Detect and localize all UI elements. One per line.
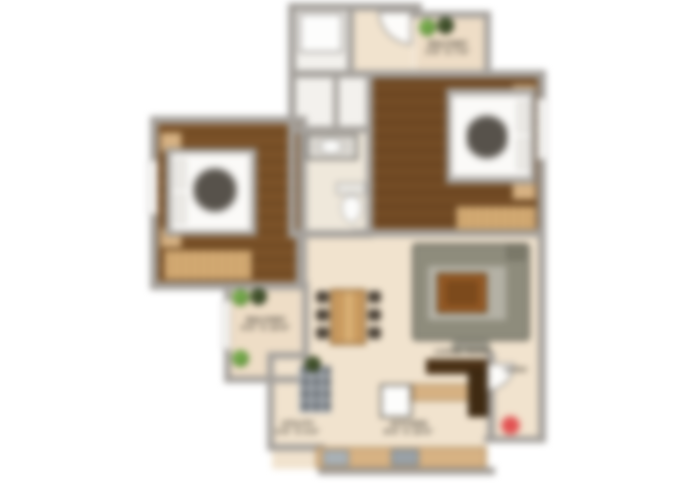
utility-dims: 3'0" X 4'0": [276, 428, 321, 436]
pillow: [517, 101, 528, 133]
wall-balcony-top: [411, 11, 491, 18]
dining-chair: [316, 327, 329, 339]
living-label: LIVING ROOM: [432, 348, 494, 356]
refrigerator: [468, 370, 488, 417]
wardrobe-left: [164, 250, 252, 280]
pillow: [517, 138, 528, 170]
pillow: [175, 194, 186, 224]
wc-right-floor: [337, 75, 368, 128]
floor-plan-image: BALCONY 3'6" X 7'0" BALCONY 4'0" X 10'0"…: [0, 0, 700, 488]
wall-toilet-room-left: [288, 128, 296, 238]
kitchen-island: [380, 384, 412, 418]
wall-entry-bottom: [484, 436, 546, 443]
kitchen-name: KITCHEN: [391, 420, 428, 428]
kitchen-sink: [323, 450, 349, 466]
kitchen-label: KITCHEN 8'0" X 10'0": [380, 420, 438, 436]
plant-icon: [419, 19, 436, 36]
window-bedroom-left: [148, 160, 158, 215]
wall-utility-left: [267, 352, 274, 451]
dining-chair: [316, 309, 329, 321]
stove: [391, 449, 419, 466]
wall-living-left: [296, 237, 303, 287]
dining-chair: [368, 309, 381, 321]
wall-wc-divider: [333, 74, 339, 130]
wall-kitchen-bottom: [318, 467, 495, 475]
dining-chair: [368, 291, 381, 303]
dining-table-runner: [345, 292, 353, 342]
balcony-left-name: BALCONY: [246, 316, 285, 324]
blurred-plan-wrapper: BALCONY 3'6" X 7'0" BALCONY 4'0" X 10'0"…: [0, 0, 700, 488]
wall-top-bath: [288, 3, 422, 11]
wall-bedrooms-top: [288, 70, 546, 78]
entry-label: ENTRY: [496, 368, 536, 375]
wardrobe-right: [456, 206, 536, 230]
utility-name: UTILITY: [282, 420, 314, 428]
coffee-table-top: [445, 280, 479, 306]
kitchen-dims: 8'0" X 10'0": [384, 428, 434, 436]
plant-icon: [232, 289, 249, 306]
side-table: [507, 244, 525, 260]
wall-balcony-right: [484, 11, 491, 78]
balcony-top-dims: 3'6" X 7'0": [426, 48, 471, 56]
kitchen-counter-top: [412, 384, 470, 401]
wall-bath-foyer-divider: [347, 3, 354, 74]
dining-chair: [368, 327, 381, 339]
washbasin: [320, 139, 342, 154]
balcony-left-label: BALCONY 4'0" X 10'0": [234, 316, 298, 332]
balcony-top-name: BALCONY: [428, 40, 467, 48]
balcony-left-dims: 4'0" X 10'0": [241, 324, 291, 332]
pillow: [175, 159, 186, 189]
wall-bath-left: [288, 3, 296, 132]
window-balcony-left: [222, 300, 231, 350]
window-bedroom-right: [537, 98, 547, 160]
dining-chair: [316, 291, 329, 303]
plant-icon: [250, 288, 267, 305]
balcony-top-label: BALCONY 3'6" X 7'0": [416, 40, 480, 56]
utility-label: UTILITY 3'0" X 4'0": [272, 420, 324, 436]
wall-bath-block-right: [366, 70, 373, 237]
wall-bedroom-left-top: [150, 116, 307, 124]
plant-icon: [305, 356, 321, 372]
bed-right-blanket: [466, 112, 508, 162]
utility-rack: [299, 366, 331, 413]
plant-icon: [232, 350, 249, 367]
entry-name: ENTRY: [504, 367, 527, 374]
toilet-tank: [336, 182, 366, 195]
bed-left-blanket: [192, 166, 238, 214]
living-name: LIVING ROOM: [435, 348, 492, 356]
plant-icon: [437, 17, 454, 34]
shower-tray: [299, 13, 343, 53]
red-entry-dot-icon: [502, 417, 519, 434]
wall-bedroom-right-bottom: [352, 229, 546, 237]
